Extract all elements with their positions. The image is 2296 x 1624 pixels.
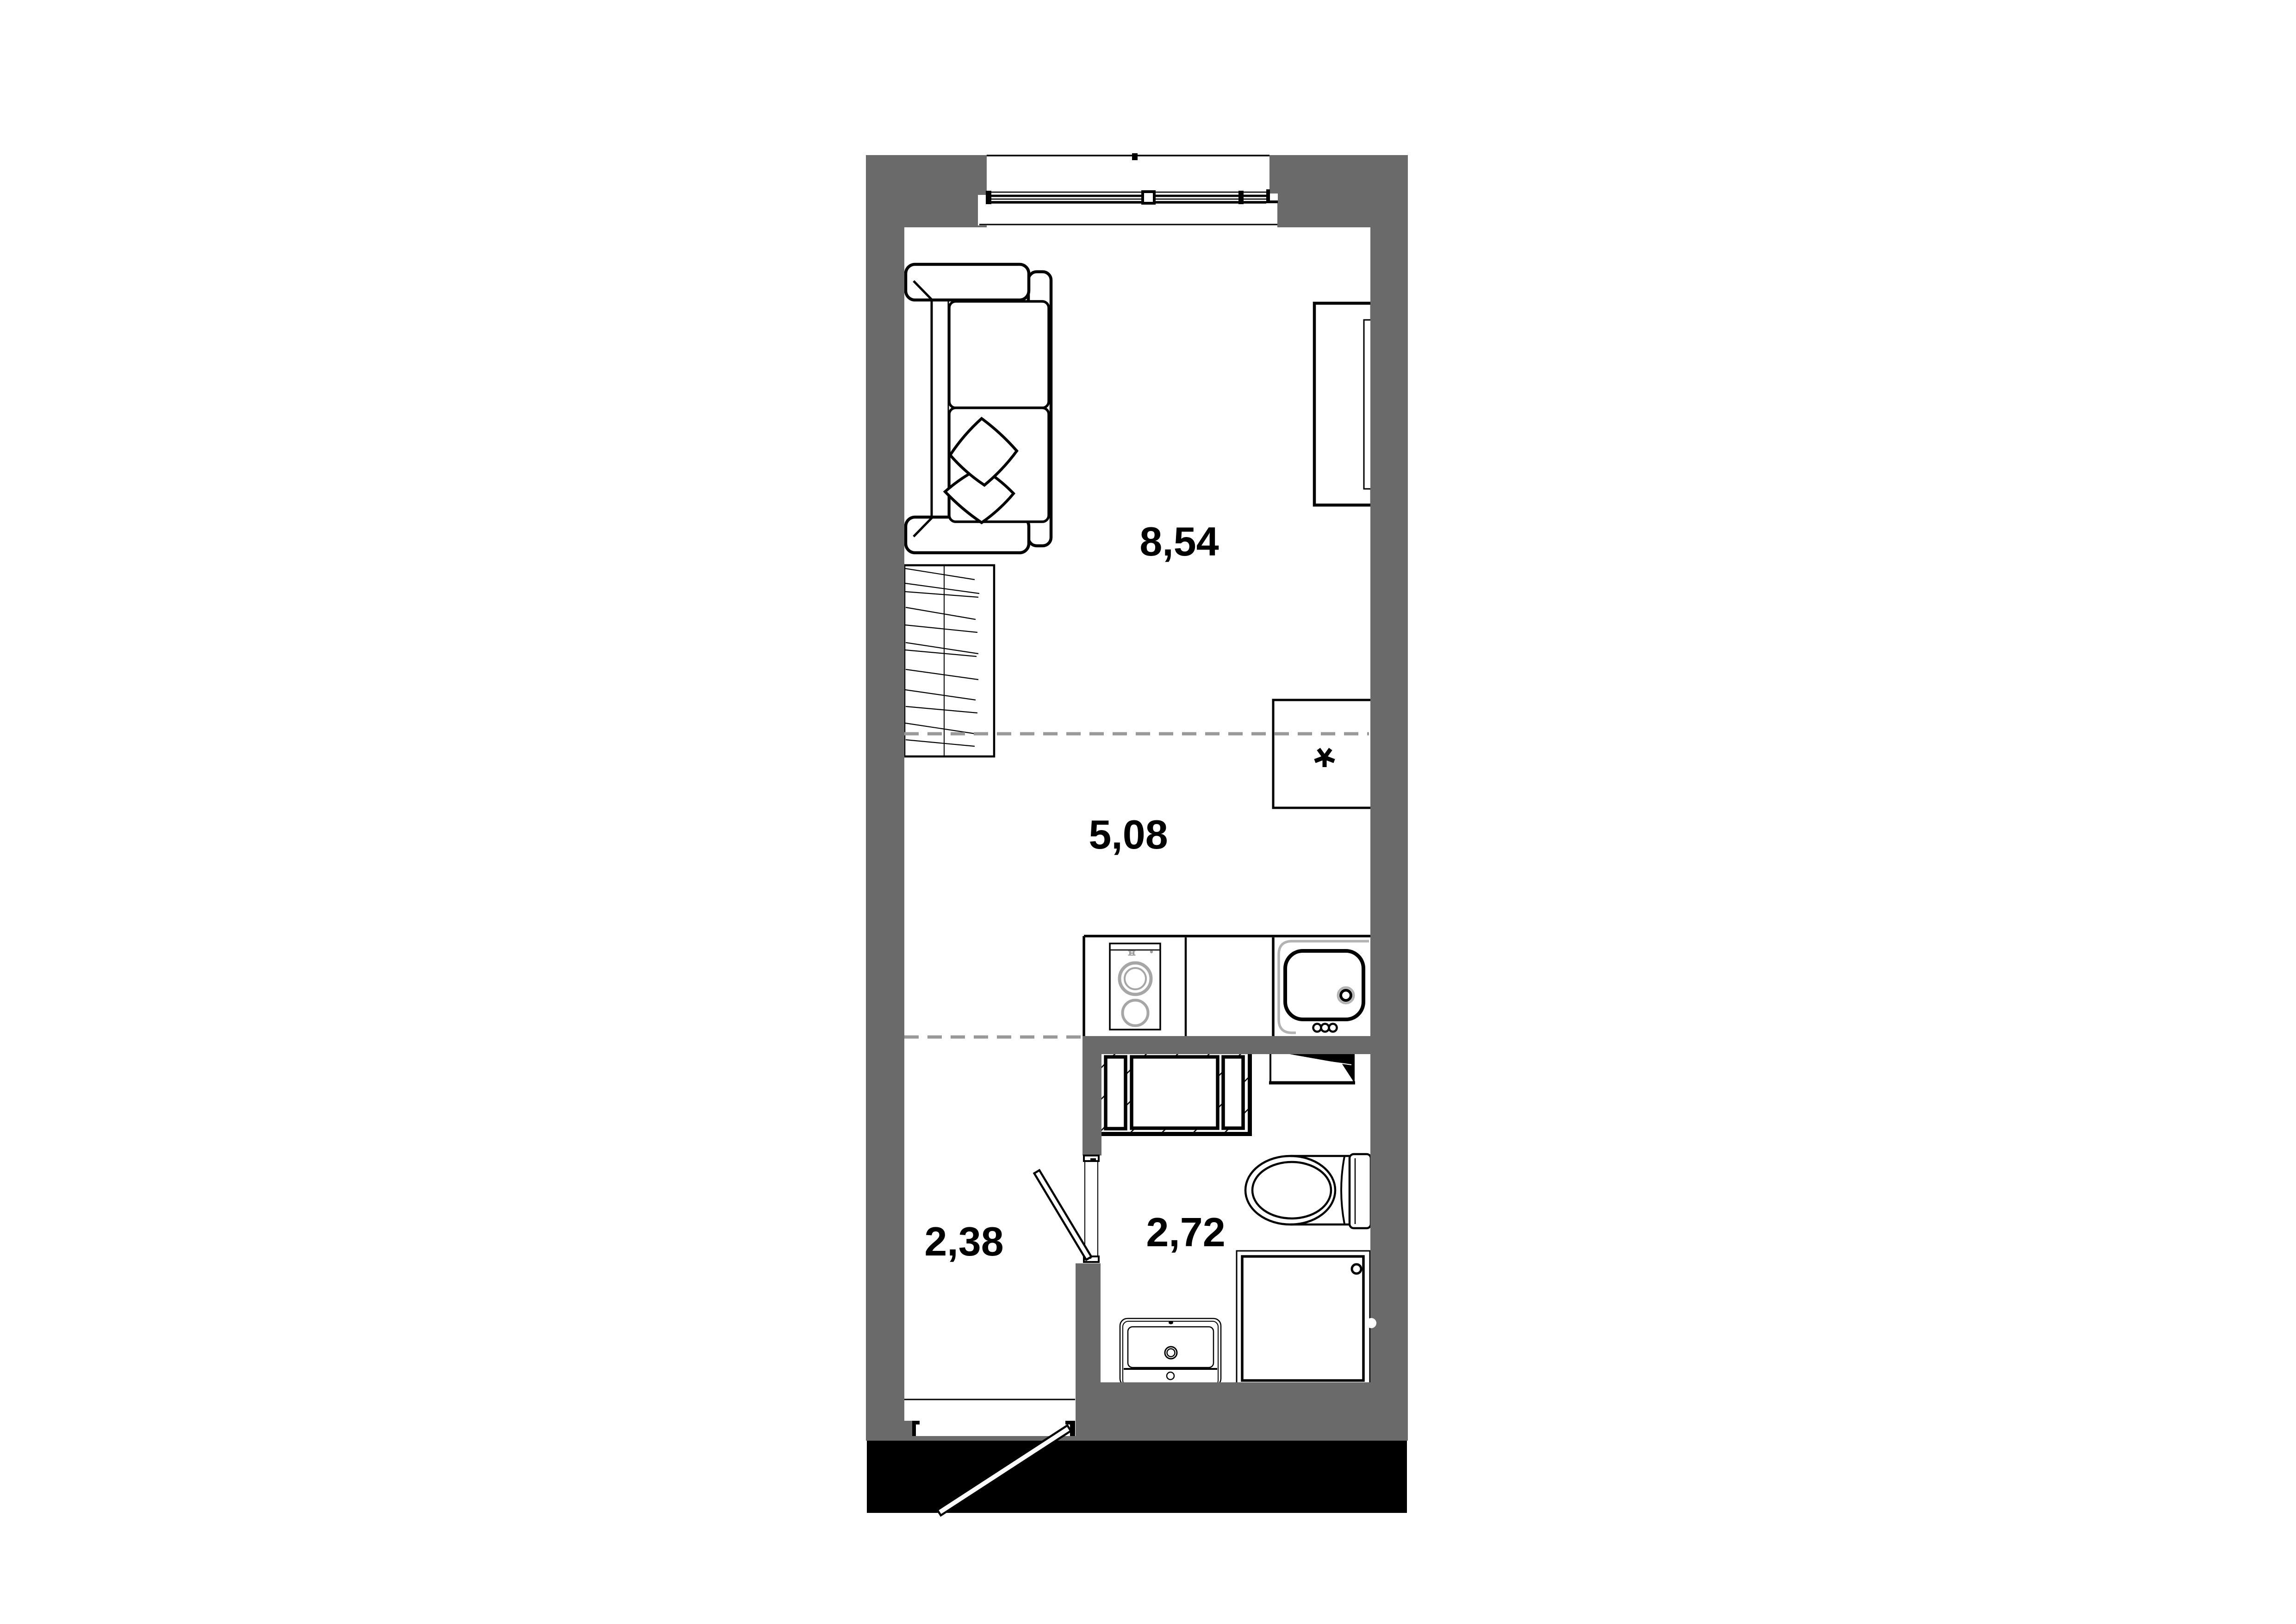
svg-text:2,72: 2,72: [1146, 1209, 1225, 1255]
svg-text:2,38: 2,38: [924, 1218, 1003, 1264]
svg-text:5,08: 5,08: [1089, 812, 1168, 857]
svg-text:8,54: 8,54: [1139, 518, 1219, 564]
